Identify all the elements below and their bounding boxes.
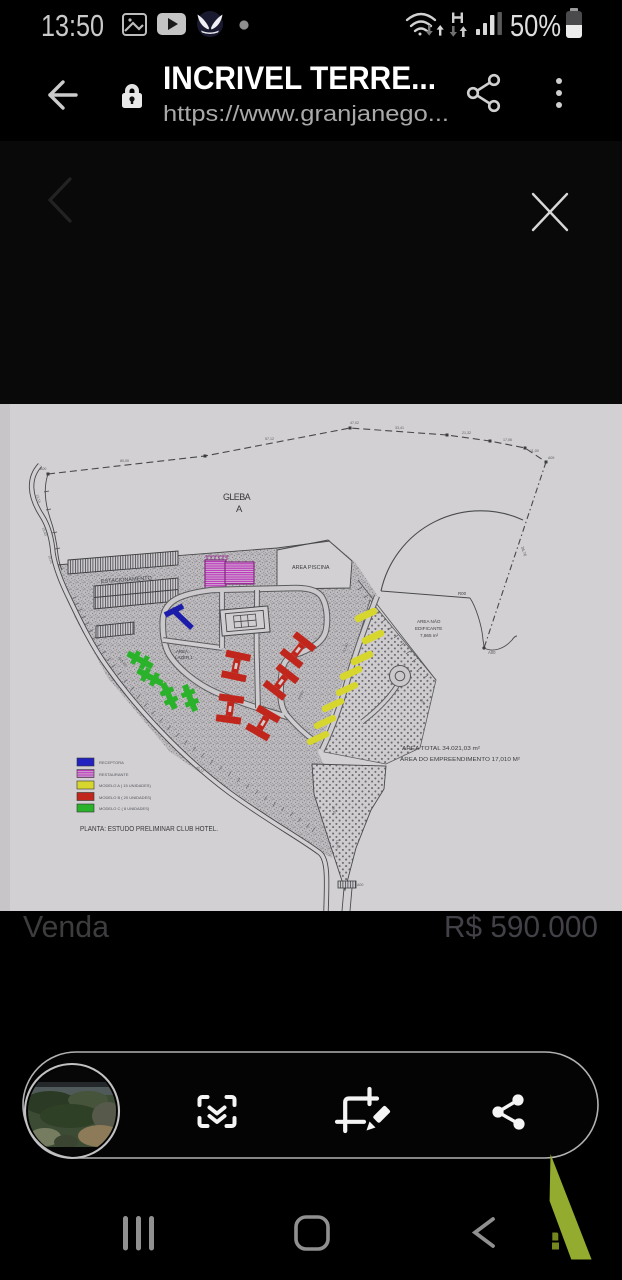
svg-text:47,02: 47,02 bbox=[350, 421, 359, 425]
svg-text:21,32: 21,32 bbox=[462, 431, 471, 435]
svg-text:17,06: 17,06 bbox=[503, 438, 512, 442]
svg-text:33,41: 33,41 bbox=[395, 426, 404, 430]
svg-text:MODELO C ( 8 UNIDADES): MODELO C ( 8 UNIDADES) bbox=[99, 806, 150, 811]
svg-text:80,00: 80,00 bbox=[120, 459, 129, 463]
svg-text:AREA: AREA bbox=[176, 649, 188, 654]
svg-text:ÁREA DO EMPREENDIMENTO 17,010: ÁREA DO EMPREENDIMENTO 17,010 M² bbox=[400, 756, 520, 763]
svg-text:Venda: Venda bbox=[23, 909, 110, 944]
svg-text:AREA NÃO: AREA NÃO bbox=[417, 618, 441, 624]
svg-text:GLEBA: GLEBA bbox=[223, 492, 251, 502]
svg-text:R$ 590.000: R$ 590.000 bbox=[444, 909, 598, 944]
svg-text:A00: A00 bbox=[357, 883, 363, 887]
svg-text:https://www.granjanego...: https://www.granjanego... bbox=[163, 101, 449, 126]
svg-text:50%: 50% bbox=[510, 8, 561, 43]
svg-text:R00: R00 bbox=[458, 591, 467, 596]
svg-text:57,12: 57,12 bbox=[265, 437, 274, 441]
svg-text:AREA PISCINA: AREA PISCINA bbox=[292, 565, 330, 571]
svg-text:RESTAURANTE: RESTAURANTE bbox=[99, 772, 129, 777]
svg-text:AREA TOTAL 34.021,03 m²: AREA TOTAL 34.021,03 m² bbox=[402, 746, 480, 752]
svg-text:13:50: 13:50 bbox=[41, 8, 104, 43]
svg-text:EDIFICANTE: EDIFICANTE bbox=[415, 626, 442, 631]
svg-text:MODELO A ( 15 UNIDADES): MODELO A ( 15 UNIDADES) bbox=[99, 783, 151, 788]
svg-text:RECEPTORA: RECEPTORA bbox=[99, 760, 124, 765]
svg-text:A00: A00 bbox=[488, 650, 496, 655]
svg-text:PLANTA: ESTUDO PRELIMINAR CLUB: PLANTA: ESTUDO PRELIMINAR CLUB HOTEL. bbox=[80, 824, 218, 833]
svg-text:7,865 m²: 7,865 m² bbox=[420, 633, 439, 638]
svg-text:A: A bbox=[236, 504, 243, 515]
svg-text:11,00: 11,00 bbox=[530, 449, 539, 453]
svg-text:INCRIVEL TERRE...: INCRIVEL TERRE... bbox=[163, 60, 436, 96]
svg-text:LAZER 1: LAZER 1 bbox=[175, 655, 193, 660]
svg-text:A09: A09 bbox=[548, 456, 554, 460]
svg-text:MODELO B ( 20 UNIDADES): MODELO B ( 20 UNIDADES) bbox=[99, 795, 152, 800]
